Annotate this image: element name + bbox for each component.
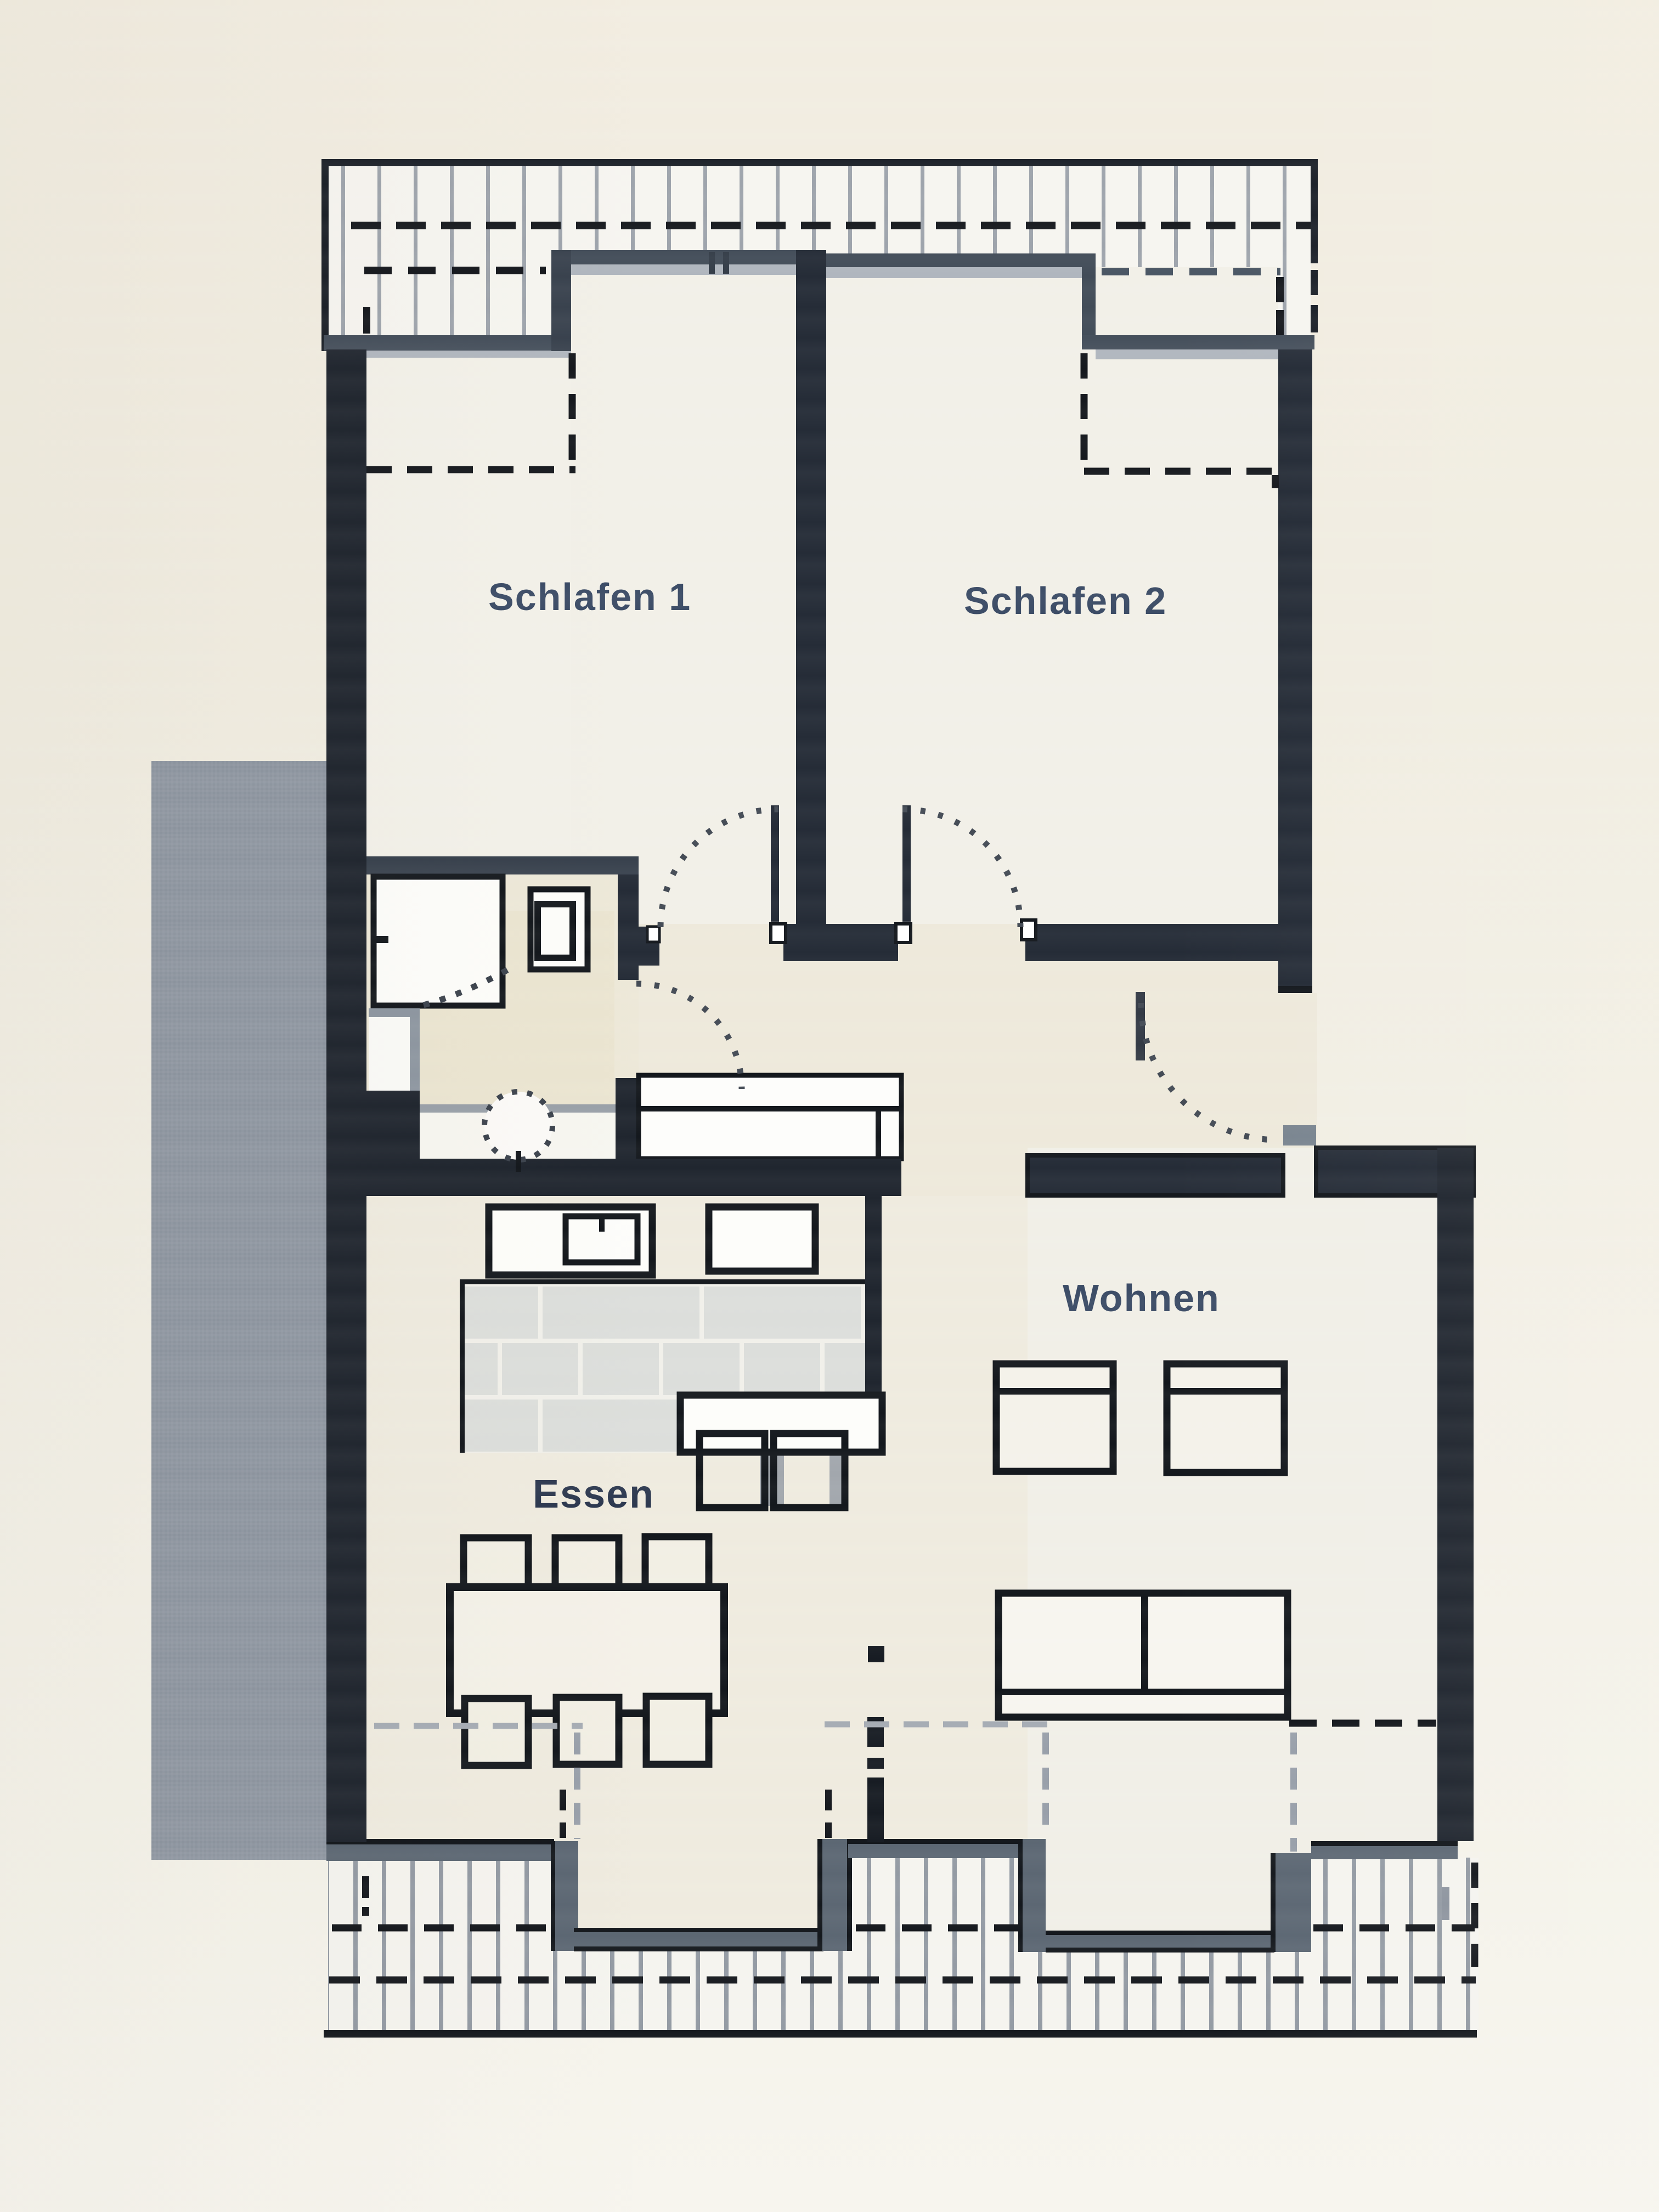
svg-text:Schlafen 1: Schlafen 1: [488, 575, 691, 618]
svg-text:Wohnen: Wohnen: [1063, 1277, 1220, 1319]
svg-text:Schlafen 2: Schlafen 2: [964, 579, 1167, 622]
svg-text:Essen: Essen: [533, 1472, 654, 1516]
